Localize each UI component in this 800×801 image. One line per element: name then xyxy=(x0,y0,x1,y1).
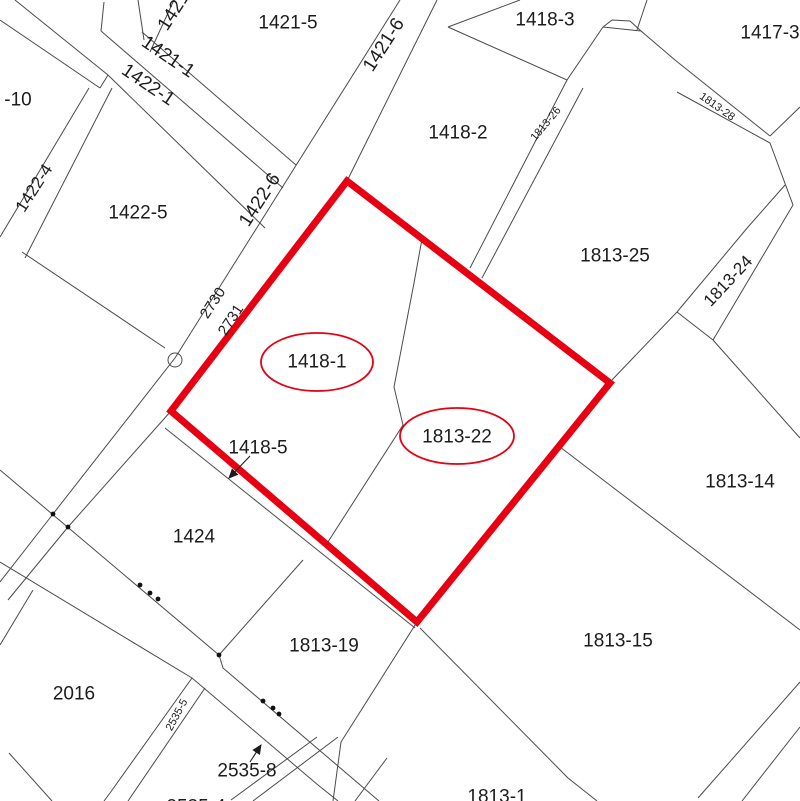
boundary-line xyxy=(448,27,603,80)
parcel-label-1418-3: 1418-3 xyxy=(515,10,574,31)
parcel-label-1422-6: 1422-6 xyxy=(235,169,285,230)
boundary-line xyxy=(0,590,33,645)
parcel-label-2535-4: 2535-4 xyxy=(166,797,226,801)
parcel-label-2535-8: 2535-8 xyxy=(217,761,276,782)
parcel-label-1813-1: 1813-1 xyxy=(467,787,526,801)
boundary-line xyxy=(100,75,108,88)
parcel-label-1417-3: 1417-3 xyxy=(740,23,799,44)
parcel-label-1813-14: 1813-14 xyxy=(705,472,775,493)
boundary-line xyxy=(612,312,677,380)
parcel-label-1813-15: 1813-15 xyxy=(583,631,653,652)
boundary-line xyxy=(770,107,800,136)
boundary-line xyxy=(482,88,583,278)
survey-point-icon xyxy=(168,353,182,367)
boundary-line xyxy=(677,92,793,340)
boundary-point-dot xyxy=(277,712,282,717)
parcel-label-1418-1: 1418-1 xyxy=(287,352,346,373)
boundary-line xyxy=(8,411,171,600)
boundary-point-dot xyxy=(261,699,266,704)
boundary-line xyxy=(128,688,205,801)
boundary-line xyxy=(677,185,785,312)
boundary-line xyxy=(326,239,422,545)
boundary-line xyxy=(0,20,100,88)
parcel-label-1422-5: 1422-5 xyxy=(108,203,167,224)
boundary-line xyxy=(104,678,192,801)
boundary-line xyxy=(15,0,108,75)
boundary-line xyxy=(713,340,800,438)
boundary-line xyxy=(138,0,144,40)
boundary-line xyxy=(22,252,165,348)
boundary-line xyxy=(448,0,520,27)
parcel-label-1813-26: 1813-26 xyxy=(528,105,563,144)
parcel-label-1418-5: 1418-5 xyxy=(228,438,287,459)
parcel-label-1813-25: 1813-25 xyxy=(580,246,650,267)
boundary-line xyxy=(677,312,713,340)
parcel-label-1421: 1421 xyxy=(154,0,195,34)
cadastral-map: 1421-51418-31417-31418-21813-251418-1181… xyxy=(0,0,800,801)
boundary-point-dot xyxy=(271,706,276,711)
parcel-label--10: -10 xyxy=(4,90,31,111)
boundary-line xyxy=(0,562,338,801)
boundary-line xyxy=(603,20,641,31)
boundary-line xyxy=(9,753,52,801)
cadastral-map-canvas: 1421-51418-31417-31418-21813-251418-1181… xyxy=(0,0,800,801)
parcel-label-1813-22: 1813-22 xyxy=(422,427,492,448)
highlight-parcel-outline xyxy=(171,181,610,622)
boundary-point-dot xyxy=(138,583,143,588)
arrow-2535-8 xyxy=(250,745,261,762)
boundary-point-dot xyxy=(148,591,153,596)
boundary-point-dot xyxy=(51,512,56,517)
parcel-label-2016: 2016 xyxy=(53,684,95,705)
boundary-line xyxy=(641,31,770,136)
boundary-line xyxy=(637,0,647,30)
parcel-label-1424: 1424 xyxy=(173,527,216,548)
parcel-label-1422-4: 1422-4 xyxy=(12,161,57,216)
boundary-point-dot xyxy=(66,525,71,530)
parcel-label-1418-2: 1418-2 xyxy=(428,123,487,144)
parcel-label-1421-5: 1421-5 xyxy=(258,13,317,34)
boundary-line xyxy=(0,0,400,582)
boundary-point-dot xyxy=(217,653,222,658)
parcel-label-1813-19: 1813-19 xyxy=(289,636,359,657)
boundary-line xyxy=(420,628,597,801)
boundary-line xyxy=(698,682,800,798)
parcel-label-1421-6: 1421-6 xyxy=(359,14,409,75)
boundary-point-dot xyxy=(156,597,161,602)
boundary-line xyxy=(101,2,104,31)
boundary-line xyxy=(101,31,283,188)
parcel-label-1813-28: 1813-28 xyxy=(697,91,737,124)
